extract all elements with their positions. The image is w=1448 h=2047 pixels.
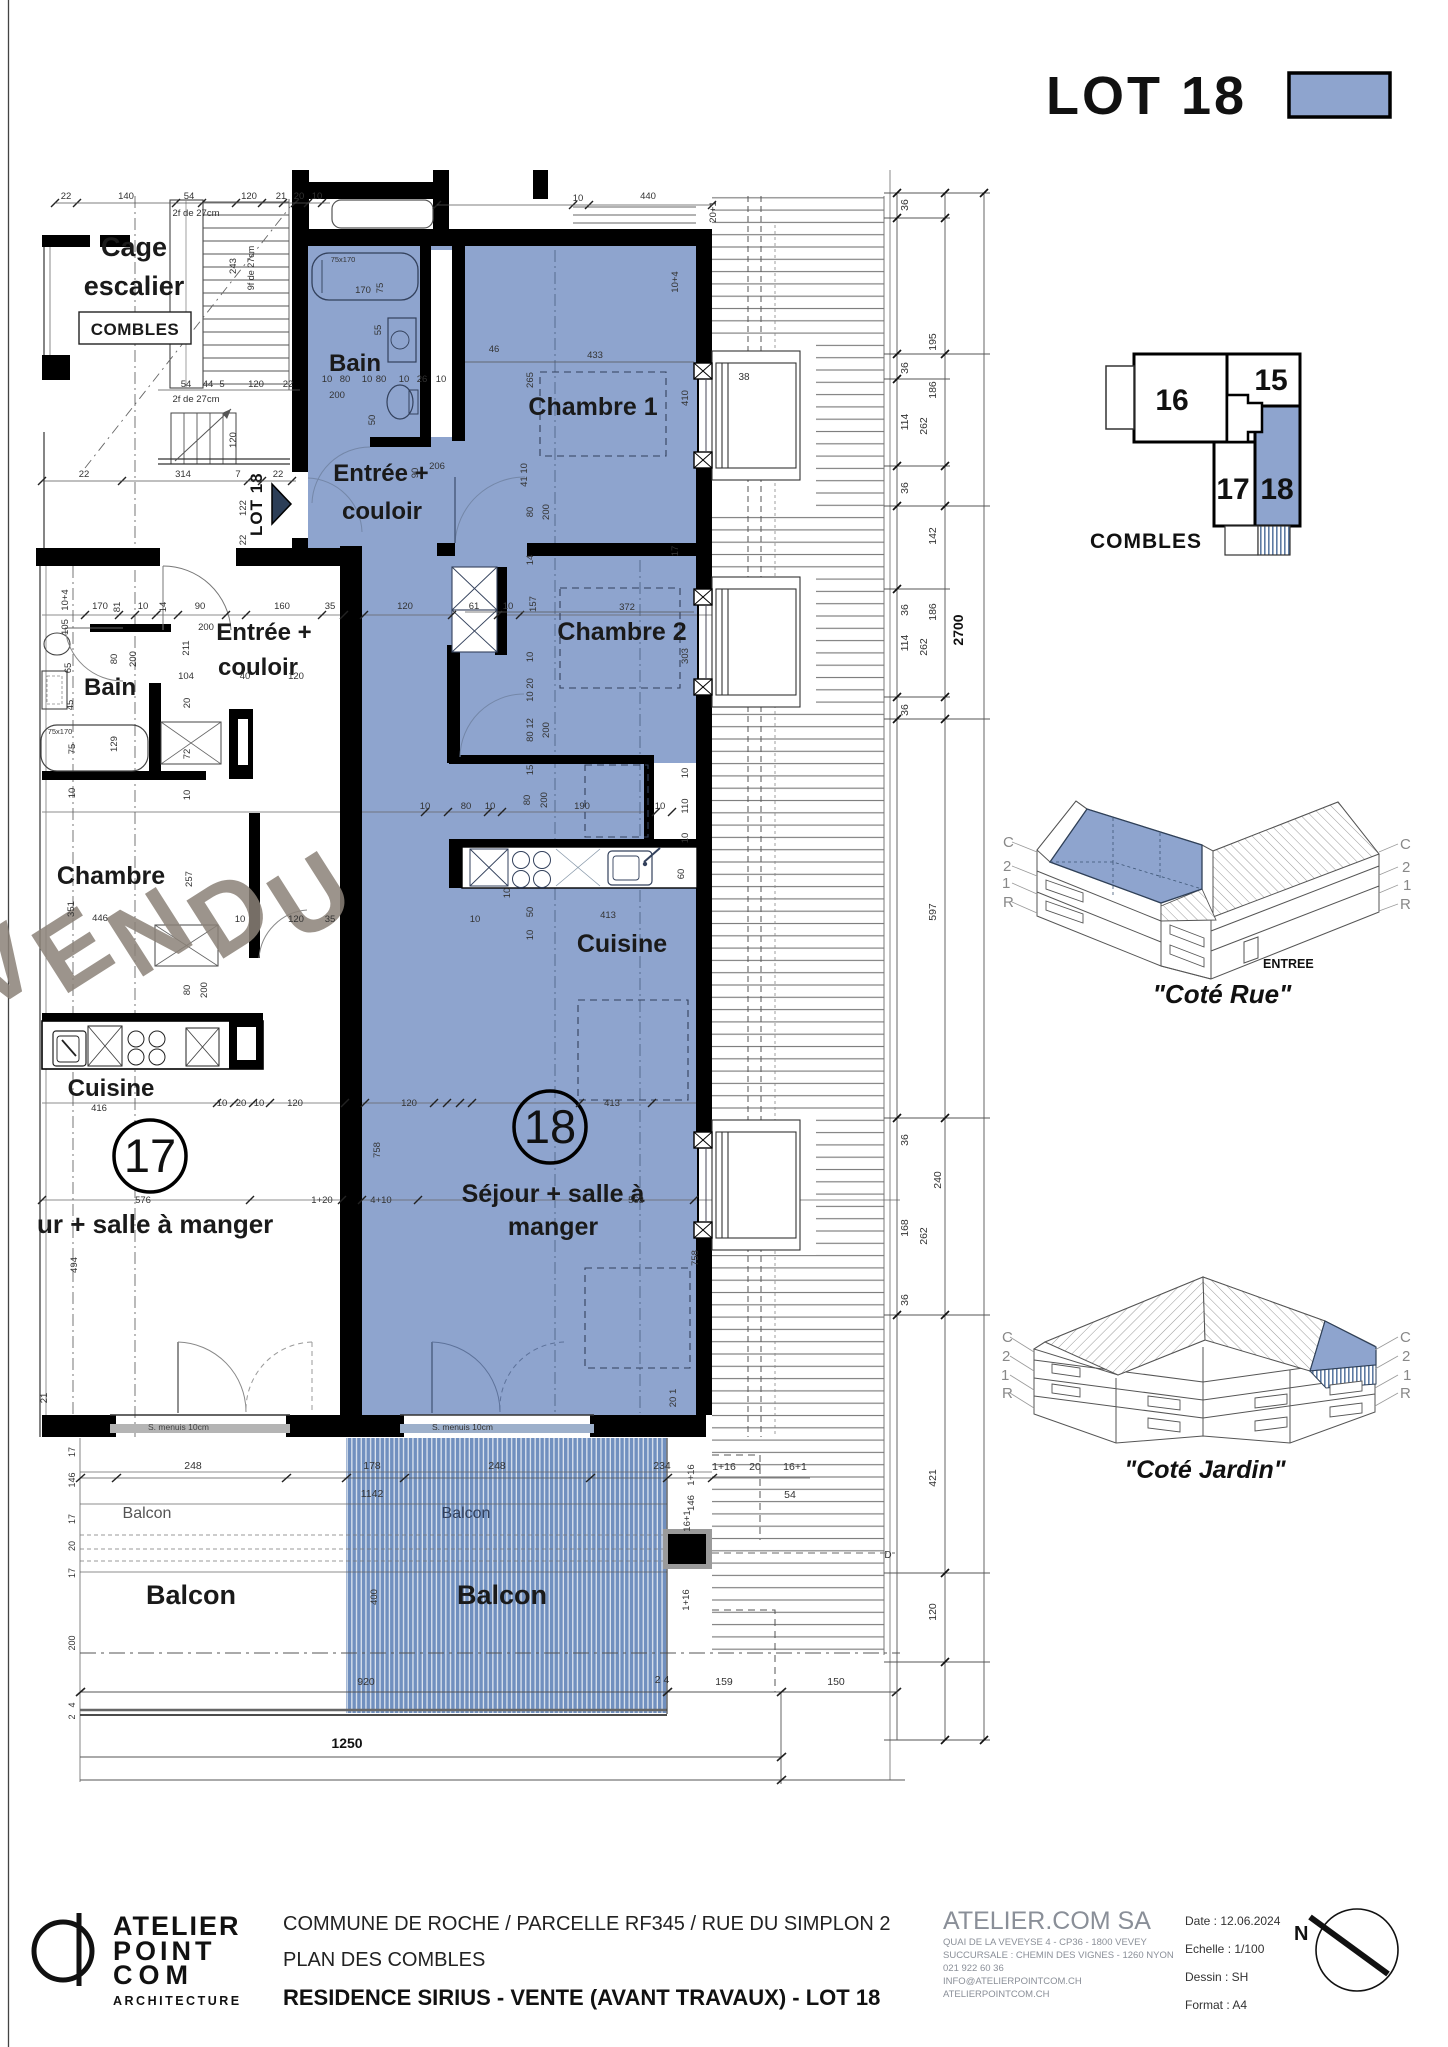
svg-text:10+4: 10+4: [670, 271, 681, 292]
svg-text:manger: manger: [508, 1213, 599, 1241]
svg-text:10: 10: [525, 652, 536, 663]
svg-text:14: 14: [525, 555, 536, 566]
svg-text:10: 10: [235, 914, 246, 925]
svg-text:ENTREE: ENTREE: [1263, 957, 1314, 971]
svg-text:36: 36: [899, 704, 911, 716]
svg-text:20: 20: [236, 1098, 247, 1109]
svg-text:54: 54: [784, 1489, 796, 1501]
svg-text:61: 61: [469, 601, 480, 612]
svg-text:14: 14: [158, 602, 169, 613]
svg-text:2f de 27cm: 2f de 27cm: [173, 208, 220, 219]
svg-text:351: 351: [66, 901, 77, 917]
svg-text:262: 262: [918, 638, 930, 656]
svg-text:Format : A4: Format : A4: [1185, 1998, 1247, 2012]
svg-text:20+1: 20+1: [708, 201, 719, 222]
svg-text:758: 758: [372, 1142, 383, 1158]
svg-text:20: 20: [182, 698, 193, 709]
svg-text:413: 413: [604, 1098, 620, 1109]
svg-text:120: 120: [228, 432, 239, 448]
svg-text:20: 20: [67, 1541, 77, 1551]
svg-text:10: 10: [322, 374, 333, 385]
svg-text:576: 576: [135, 1195, 151, 1206]
svg-text:1: 1: [1001, 1367, 1009, 1384]
svg-text:146: 146: [67, 1472, 77, 1487]
svg-text:17: 17: [67, 1568, 77, 1578]
svg-text:200: 200: [329, 390, 345, 401]
svg-text:21: 21: [39, 1393, 50, 1404]
svg-text:Entrée +: Entrée +: [216, 619, 311, 646]
svg-text:120: 120: [397, 601, 413, 612]
svg-text:PLAN DES COMBLES: PLAN DES COMBLES: [283, 1949, 485, 1971]
svg-text:R: R: [1400, 896, 1411, 913]
svg-text:021 922 60 36: 021 922 60 36: [943, 1963, 1004, 1974]
svg-text:10: 10: [680, 833, 691, 844]
svg-text:COMMUNE DE ROCHE / PARCELLE RF: COMMUNE DE ROCHE / PARCELLE RF345 / RUE …: [283, 1913, 891, 1935]
svg-text:Balcon: Balcon: [442, 1505, 491, 1522]
svg-text:50: 50: [525, 907, 536, 918]
svg-text:20: 20: [749, 1461, 761, 1473]
svg-text:Balcon: Balcon: [146, 1580, 236, 1610]
svg-text:22: 22: [238, 535, 249, 546]
svg-text:54: 54: [181, 379, 192, 390]
svg-text:9f de 27cm: 9f de 27cm: [246, 246, 256, 291]
svg-text:314: 314: [175, 469, 191, 480]
svg-text:22: 22: [283, 379, 294, 390]
svg-text:920: 920: [357, 1676, 375, 1688]
svg-text:44: 44: [203, 379, 214, 390]
svg-text:80: 80: [461, 801, 472, 812]
svg-text:60: 60: [676, 869, 687, 880]
svg-text:Balcon: Balcon: [457, 1580, 547, 1610]
svg-text:80: 80: [525, 507, 536, 518]
svg-text:157: 157: [528, 596, 539, 612]
svg-text:26: 26: [417, 374, 428, 385]
svg-text:195: 195: [927, 333, 939, 351]
svg-text:10: 10: [502, 888, 513, 899]
svg-text:41 10: 41 10: [519, 463, 530, 487]
svg-text:421: 421: [927, 1469, 939, 1487]
svg-text:200: 200: [541, 722, 552, 738]
svg-text:2 4: 2 4: [655, 1674, 670, 1686]
svg-text:129: 129: [109, 736, 120, 752]
svg-text:597: 597: [927, 903, 939, 921]
svg-text:150: 150: [827, 1676, 845, 1688]
svg-text:couloir: couloir: [218, 654, 298, 681]
svg-text:36: 36: [899, 199, 911, 211]
svg-text:120: 120: [287, 1098, 303, 1109]
svg-text:211: 211: [181, 640, 192, 655]
svg-text:21: 21: [276, 191, 287, 202]
svg-text:D: D: [884, 1550, 891, 1561]
svg-text:80: 80: [522, 795, 533, 806]
svg-text:200: 200: [541, 504, 552, 520]
svg-text:C: C: [1400, 1329, 1411, 1346]
svg-text:10: 10: [362, 374, 373, 385]
svg-text:escalier: escalier: [84, 271, 185, 301]
svg-text:10: 10: [138, 601, 149, 612]
svg-text:36: 36: [899, 604, 911, 616]
svg-text:C: C: [1400, 836, 1411, 853]
svg-text:ATELIER.COM SA: ATELIER.COM SA: [943, 1907, 1151, 1935]
svg-text:2: 2: [1002, 1348, 1010, 1365]
svg-text:2: 2: [1402, 859, 1410, 876]
svg-text:120: 120: [927, 1603, 939, 1621]
svg-text:120: 120: [288, 914, 304, 925]
svg-text:2: 2: [1402, 1348, 1410, 1365]
svg-text:81: 81: [112, 602, 123, 613]
svg-text:20: 20: [294, 191, 305, 202]
svg-text:35: 35: [325, 601, 336, 612]
svg-text:413: 413: [600, 910, 616, 921]
svg-text:10: 10: [470, 914, 481, 925]
svg-text:17: 17: [1216, 473, 1249, 506]
svg-text:200: 200: [539, 792, 550, 808]
svg-text:80: 80: [109, 654, 120, 665]
svg-text:22: 22: [273, 469, 284, 480]
svg-text:10: 10: [67, 788, 78, 799]
svg-text:S. menuis 10cm: S. menuis 10cm: [148, 1422, 209, 1432]
svg-text:QUAI DE LA VEVEYSE 4 - CP36 -: QUAI DE LA VEVEYSE 4 - CP36 - 1800 VEVEY: [943, 1937, 1147, 1948]
svg-text:10: 10: [182, 790, 193, 801]
svg-text:90: 90: [410, 468, 421, 479]
svg-text:10: 10: [312, 191, 323, 202]
svg-text:50: 50: [367, 415, 378, 426]
svg-text:114: 114: [899, 413, 911, 430]
svg-text:10: 10: [503, 601, 514, 612]
svg-text:105: 105: [60, 619, 71, 635]
svg-text:17: 17: [67, 1514, 77, 1524]
svg-text:140: 140: [118, 191, 134, 202]
svg-text:22: 22: [61, 191, 72, 202]
svg-text:RESIDENCE SIRIUS - VENTE (AVAN: RESIDENCE SIRIUS - VENTE (AVANT TRAVAUX)…: [283, 1985, 880, 2010]
svg-text:1: 1: [1403, 877, 1411, 894]
svg-text:16: 16: [1155, 384, 1188, 417]
svg-text:4+10: 4+10: [370, 1195, 391, 1206]
svg-text:440: 440: [640, 191, 656, 202]
svg-text:234: 234: [653, 1460, 671, 1472]
svg-text:90: 90: [195, 601, 206, 612]
svg-text:10: 10: [436, 374, 447, 385]
svg-text:N: N: [1294, 1923, 1308, 1945]
svg-text:120: 120: [241, 191, 257, 202]
svg-text:10: 10: [525, 930, 536, 941]
svg-text:303: 303: [680, 648, 691, 664]
svg-text:ur + salle à manger: ur + salle à manger: [37, 1209, 273, 1239]
svg-text:7: 7: [235, 469, 240, 480]
svg-text:17: 17: [124, 1129, 176, 1182]
svg-text:LOT 18: LOT 18: [1046, 66, 1247, 126]
svg-text:ARCHITECTURE: ARCHITECTURE: [113, 1994, 242, 2008]
svg-text:10: 10: [420, 801, 431, 812]
svg-text:Cuisine: Cuisine: [577, 930, 667, 958]
svg-text:446: 446: [92, 913, 108, 924]
svg-text:10: 10: [254, 1098, 265, 1109]
svg-text:200: 200: [67, 1635, 77, 1650]
svg-text:410: 410: [680, 390, 691, 406]
svg-text:Séjour + salle à: Séjour + salle à: [462, 1180, 645, 1208]
svg-text:38: 38: [738, 372, 750, 383]
svg-text:55: 55: [373, 325, 384, 336]
svg-text:186: 186: [927, 603, 939, 621]
svg-text:2: 2: [67, 1714, 77, 1719]
svg-text:"Coté Jardin": "Coté Jardin": [1124, 1456, 1286, 1484]
svg-text:1+16: 1+16: [686, 1464, 697, 1485]
svg-text:262: 262: [918, 417, 930, 435]
svg-text:433: 433: [587, 350, 603, 361]
svg-text:170: 170: [355, 285, 371, 296]
svg-text:40: 40: [240, 671, 251, 682]
svg-text:18: 18: [524, 1100, 576, 1153]
svg-text:372: 372: [619, 602, 635, 613]
svg-text:75x170: 75x170: [48, 727, 73, 736]
svg-text:160: 160: [274, 601, 290, 612]
svg-text:45: 45: [65, 700, 76, 711]
svg-text:Dessin : SH: Dessin : SH: [1185, 1970, 1248, 1984]
svg-text:Echelle : 1/100: Echelle : 1/100: [1185, 1942, 1265, 1956]
svg-text:10: 10: [217, 1098, 228, 1109]
svg-text:104: 104: [178, 671, 194, 682]
svg-text:SUCCURSALE : CHEMIN DES VIGNES: SUCCURSALE : CHEMIN DES VIGNES - 1260 NY…: [943, 1950, 1174, 1961]
svg-text:178: 178: [363, 1460, 381, 1472]
svg-text:R: R: [1400, 1385, 1411, 1402]
svg-text:80 12: 80 12: [525, 718, 536, 742]
svg-text:"Coté Rue": "Coté Rue": [1153, 979, 1292, 1009]
svg-text:Chambre 2: Chambre 2: [557, 618, 686, 646]
svg-text:22: 22: [79, 469, 90, 480]
svg-text:2: 2: [1003, 858, 1011, 875]
svg-text:36: 36: [899, 1134, 911, 1146]
svg-text:17: 17: [67, 1447, 77, 1457]
svg-text:10: 10: [573, 193, 584, 204]
svg-text:Balcon: Balcon: [123, 1505, 172, 1522]
svg-text:200: 200: [198, 622, 214, 633]
svg-text:186: 186: [927, 381, 939, 399]
svg-text:1142: 1142: [361, 1488, 384, 1500]
svg-text:54: 54: [184, 191, 195, 202]
svg-text:Date : 12.06.2024: Date : 12.06.2024: [1185, 1914, 1281, 1928]
svg-text:1+16: 1+16: [681, 1589, 692, 1610]
svg-text:262: 262: [918, 1227, 930, 1245]
svg-text:17: 17: [670, 546, 681, 557]
svg-text:16+1: 16+1: [682, 1510, 693, 1531]
svg-text:5: 5: [219, 379, 224, 390]
svg-text:2700: 2700: [950, 614, 966, 645]
svg-text:46: 46: [489, 344, 500, 355]
svg-text:15: 15: [525, 765, 536, 776]
svg-text:120: 120: [288, 671, 304, 682]
svg-text:4: 4: [67, 1702, 77, 1707]
svg-text:80: 80: [340, 374, 351, 385]
svg-text:257: 257: [184, 871, 195, 887]
svg-text:INFO@ATELIERPOINTCOM.CH: INFO@ATELIERPOINTCOM.CH: [943, 1976, 1082, 1987]
svg-text:1250: 1250: [331, 1735, 362, 1751]
svg-text:36: 36: [899, 482, 911, 494]
svg-text:COMBLES: COMBLES: [1090, 530, 1202, 553]
svg-text:1: 1: [1002, 875, 1010, 892]
svg-text:1+16: 1+16: [712, 1461, 736, 1473]
svg-text:142: 142: [927, 527, 939, 545]
svg-text:80: 80: [376, 374, 387, 385]
svg-text:400: 400: [369, 1589, 380, 1605]
svg-text:168: 168: [899, 1219, 911, 1237]
svg-text:122: 122: [238, 500, 249, 516]
svg-text:159: 159: [715, 1676, 733, 1688]
svg-text:36: 36: [899, 1294, 911, 1306]
svg-text:563: 563: [628, 1195, 644, 1206]
svg-text:36: 36: [899, 362, 911, 374]
svg-text:10: 10: [655, 801, 666, 812]
svg-text:494: 494: [69, 1257, 80, 1273]
svg-text:243: 243: [228, 258, 239, 274]
svg-text:ATELIERPOINTCOM.CH: ATELIERPOINTCOM.CH: [943, 1989, 1050, 2000]
svg-text:15: 15: [1254, 364, 1287, 397]
svg-text:10: 10: [399, 374, 410, 385]
svg-text:10 20: 10 20: [525, 678, 536, 702]
svg-text:80: 80: [182, 985, 193, 996]
svg-text:758: 758: [690, 1250, 701, 1266]
svg-text:COM: COM: [113, 1960, 194, 1990]
svg-text:Bain: Bain: [329, 350, 381, 377]
svg-text:Cuisine: Cuisine: [68, 1075, 155, 1102]
svg-text:248: 248: [184, 1460, 202, 1472]
svg-text:COMBLES: COMBLES: [91, 320, 180, 339]
svg-text:114: 114: [899, 634, 911, 651]
svg-text:18: 18: [1260, 473, 1293, 506]
svg-text:1: 1: [1403, 1367, 1411, 1384]
svg-text:couloir: couloir: [342, 498, 422, 525]
svg-text:S. menuis 10cm: S. menuis 10cm: [432, 1422, 493, 1432]
svg-text:72: 72: [182, 749, 193, 760]
svg-text:16+1: 16+1: [783, 1461, 807, 1473]
svg-text:Chambre 1: Chambre 1: [528, 393, 657, 421]
svg-text:10+4: 10+4: [60, 589, 71, 610]
svg-text:1+20: 1+20: [311, 1195, 332, 1206]
svg-text:200: 200: [199, 982, 210, 998]
svg-text:265: 265: [525, 372, 536, 388]
svg-text:LOT 18: LOT 18: [247, 472, 266, 536]
svg-text:200: 200: [128, 651, 139, 667]
svg-text:35: 35: [325, 914, 336, 925]
svg-text:170: 170: [92, 601, 108, 612]
svg-text:240: 240: [932, 1171, 944, 1189]
svg-text:120: 120: [401, 1098, 417, 1109]
svg-text:10: 10: [485, 801, 496, 812]
svg-text:75x170: 75x170: [331, 255, 356, 264]
svg-text:190: 190: [574, 801, 590, 812]
svg-text:206: 206: [429, 461, 445, 472]
svg-text:Cage: Cage: [101, 232, 167, 262]
svg-text:248: 248: [488, 1460, 506, 1472]
svg-text:146: 146: [686, 1495, 697, 1511]
svg-text:10: 10: [680, 768, 691, 779]
svg-text:Bain: Bain: [84, 674, 136, 701]
svg-text:120: 120: [248, 379, 264, 390]
svg-text:416: 416: [91, 1103, 107, 1114]
svg-text:110: 110: [680, 798, 691, 813]
svg-text:2f de 27cm: 2f de 27cm: [173, 394, 220, 405]
svg-text:20 1: 20 1: [668, 1389, 679, 1408]
svg-text:75: 75: [67, 744, 78, 755]
svg-text:75: 75: [375, 283, 386, 294]
svg-text:65: 65: [63, 663, 74, 674]
